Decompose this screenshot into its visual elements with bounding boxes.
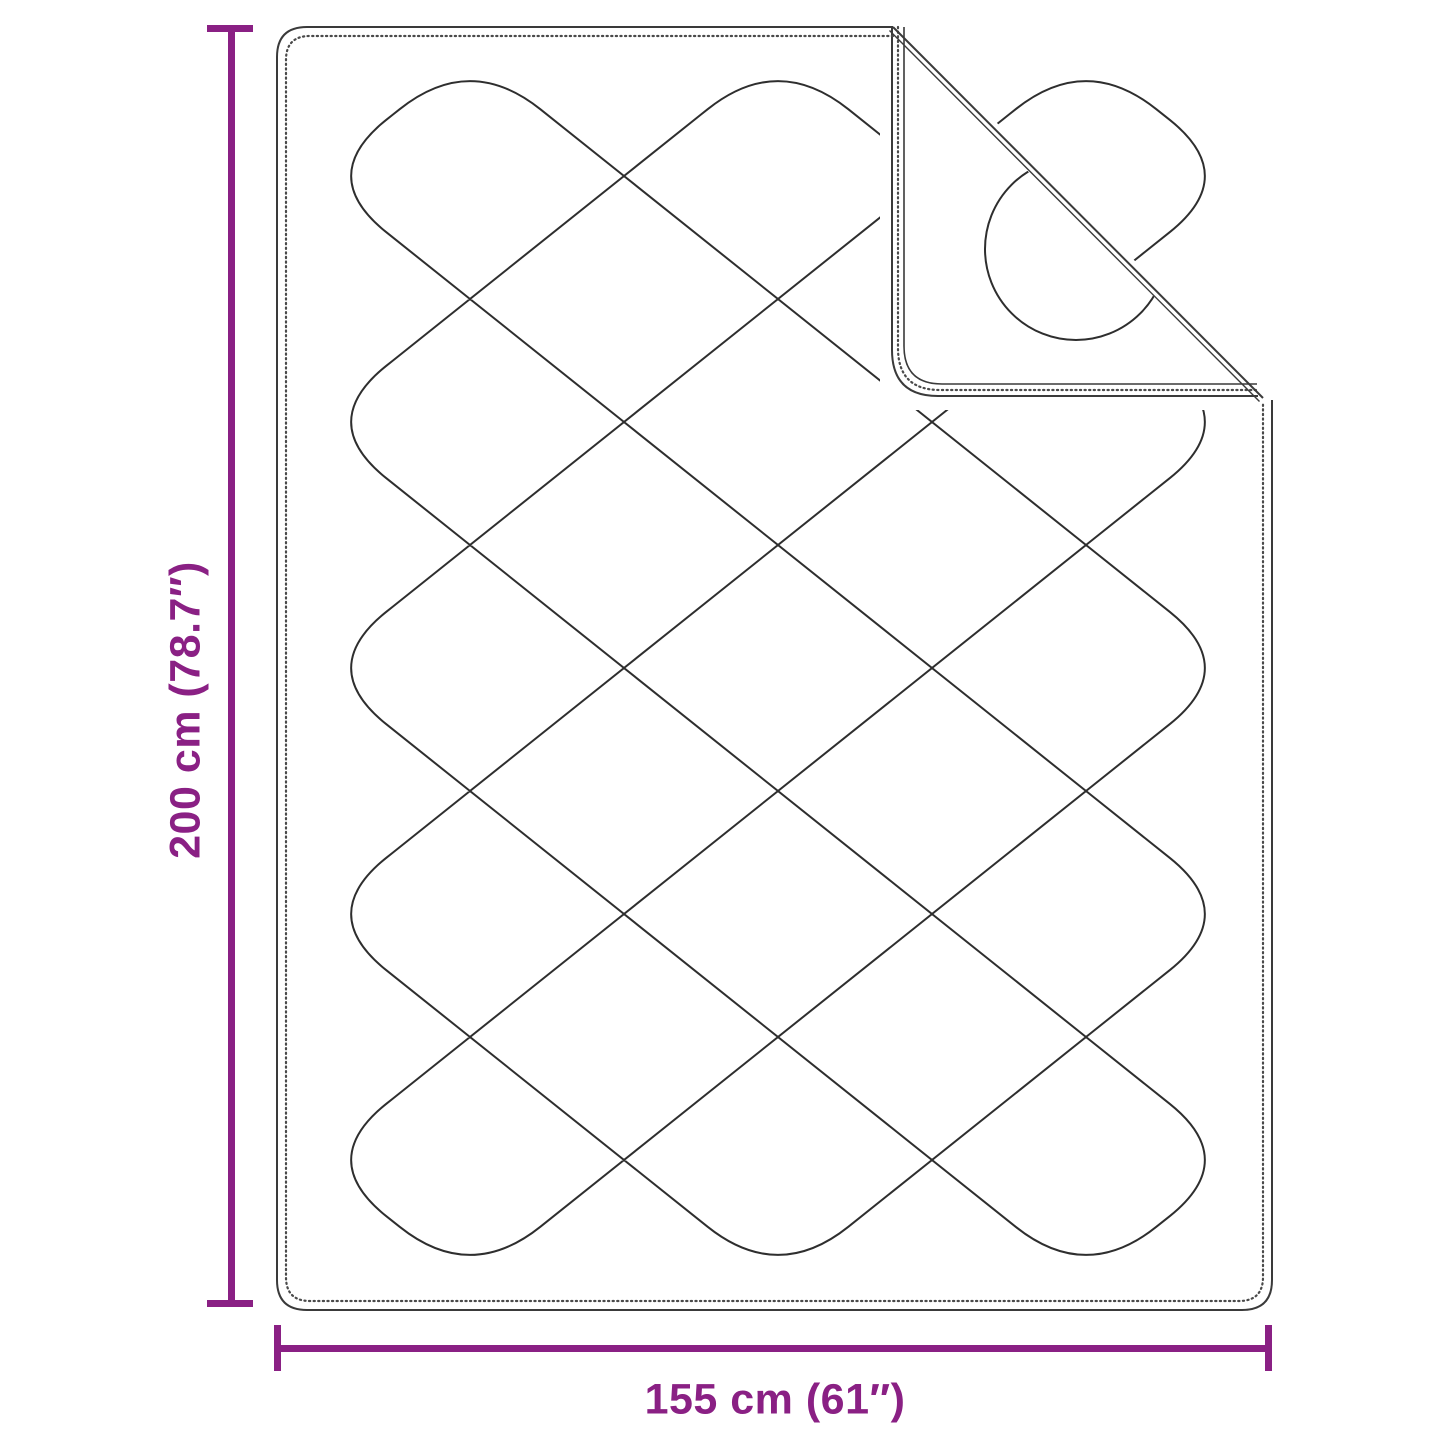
- product-dimension-diagram: 200 cm (78.7″) 155 cm (61″): [0, 0, 1445, 1445]
- fold-cover: [880, 6, 1284, 410]
- horizontal-dimension-cap-right: [1265, 1325, 1272, 1371]
- blanket-outline: [277, 27, 1272, 1310]
- horizontal-dimension-cap-left: [274, 1325, 281, 1371]
- vertical-dimension-cap-top: [207, 25, 253, 32]
- vertical-dimension-line: [228, 28, 235, 1305]
- vertical-dimension-cap-bottom: [207, 1300, 253, 1307]
- outline-stitch-line: [286, 36, 1263, 1301]
- outline-outer-edge: [277, 27, 1272, 1310]
- blanket-line-drawing: [0, 0, 1445, 1445]
- vertical-dimension-label: 200 cm (78.7″): [162, 561, 211, 859]
- horizontal-dimension-label: 155 cm (61″): [645, 1376, 906, 1425]
- horizontal-dimension-line: [277, 1345, 1272, 1352]
